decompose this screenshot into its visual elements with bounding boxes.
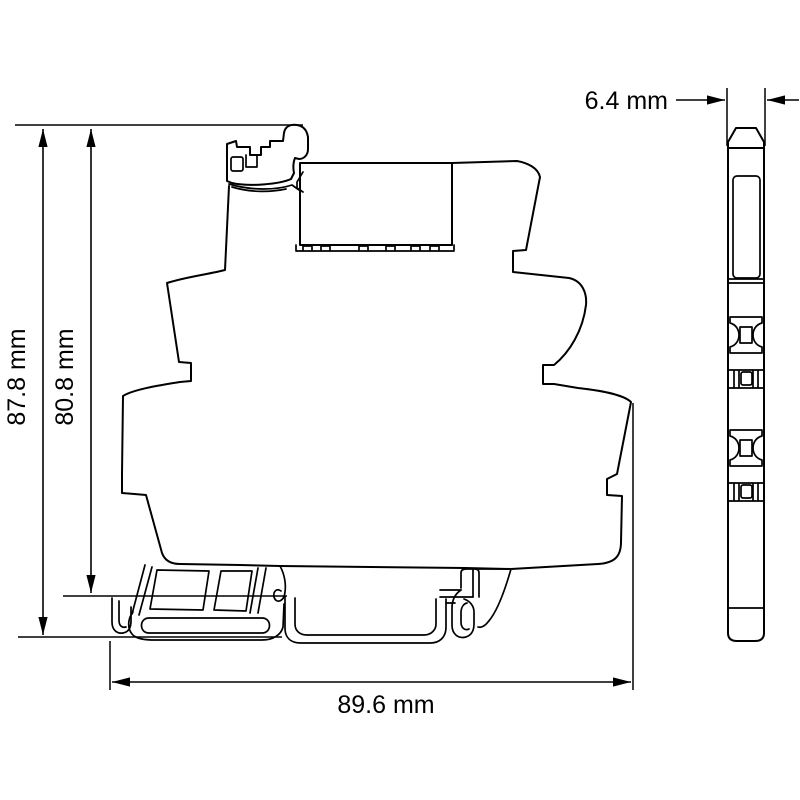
side-spool-2-window [740,440,752,456]
band-1-window [741,372,752,385]
foot-slider [129,565,286,640]
side-terminal-band-1 [728,370,764,388]
release-clip [227,125,308,185]
side-spool-2 [730,430,762,466]
right-hook-slant [478,569,511,627]
slider-panel-right [214,571,252,611]
module-block [300,163,452,245]
label-rail-height: 80.8 mm [51,328,79,425]
side-marker-slot [733,176,760,278]
slider-left-edge [132,565,152,615]
slider-slot [142,618,270,633]
slider-divider [250,568,266,613]
label-width: 6.4 mm [585,87,668,115]
label-depth: 89.6 mm [337,691,434,719]
label-overall-height: 87.8 mm [3,328,31,425]
side-terminal-band-2 [728,483,764,501]
side-separators [728,279,764,608]
dimension-drawing-canvas: 87.8 mm 80.8 mm 89.6 mm 6.4 mm [0,0,800,800]
housing-outline [122,161,631,569]
band-2-window [741,485,752,498]
foot-right-hook [440,569,511,637]
side-cap [728,128,764,148]
side-view [728,128,764,641]
clip-square-hole [231,157,243,171]
foot-channel [285,597,446,643]
technical-drawing-page: 87.8 mm 80.8 mm 89.6 mm 6.4 mm [0,0,800,800]
clip-notch [246,155,257,167]
foot-left-hook [112,598,131,633]
front-view [112,125,631,643]
side-spool-1-window [740,327,752,343]
side-spool-1 [730,317,762,353]
slider-panel-left [150,570,209,610]
right-hook-cap [461,569,479,597]
